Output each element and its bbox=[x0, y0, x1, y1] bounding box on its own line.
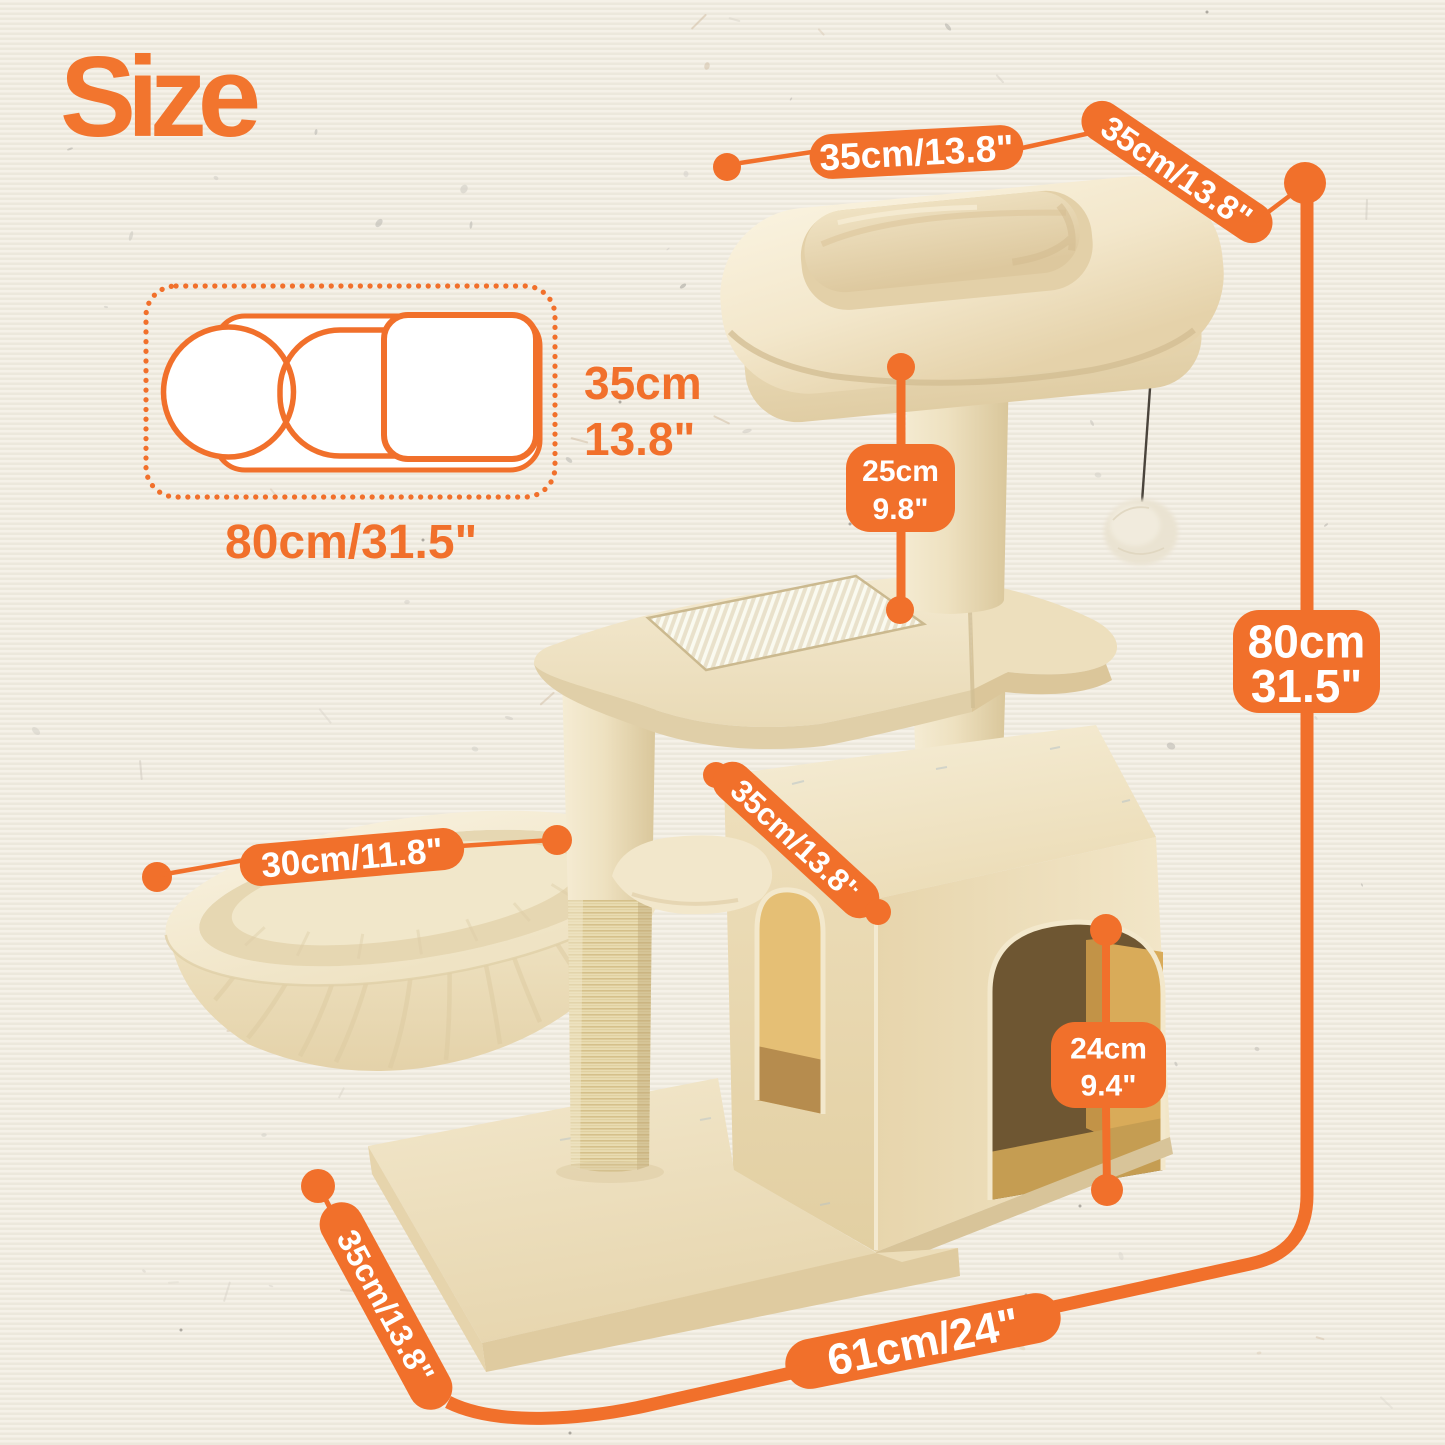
svg-text:9.4": 9.4" bbox=[1081, 1070, 1137, 1103]
svg-text:25cm: 25cm bbox=[862, 455, 939, 488]
svg-text:9.8": 9.8" bbox=[873, 493, 929, 526]
svg-text:31.5": 31.5" bbox=[1251, 660, 1362, 712]
svg-text:80cm/31.5": 80cm/31.5" bbox=[225, 516, 477, 569]
svg-text:24cm: 24cm bbox=[1070, 1033, 1147, 1066]
svg-text:Size: Size bbox=[60, 34, 258, 161]
svg-text:35cm: 35cm bbox=[584, 357, 702, 409]
svg-text:13.8": 13.8" bbox=[584, 413, 695, 465]
